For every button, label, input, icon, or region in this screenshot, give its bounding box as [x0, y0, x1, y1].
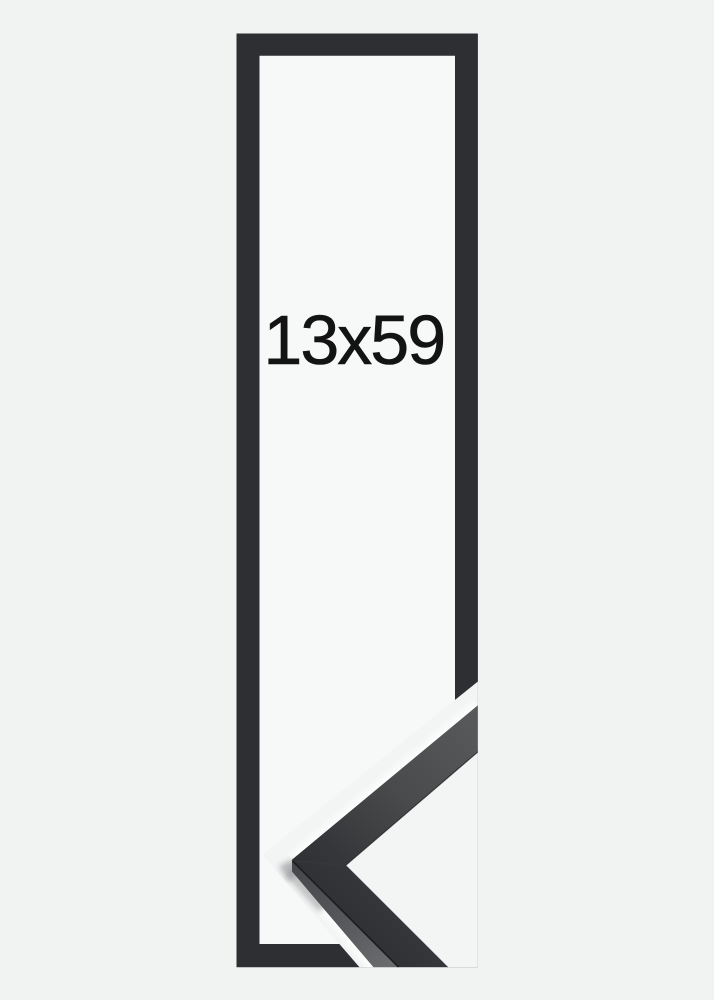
- svg-text:13x59: 13x59: [263, 301, 444, 379]
